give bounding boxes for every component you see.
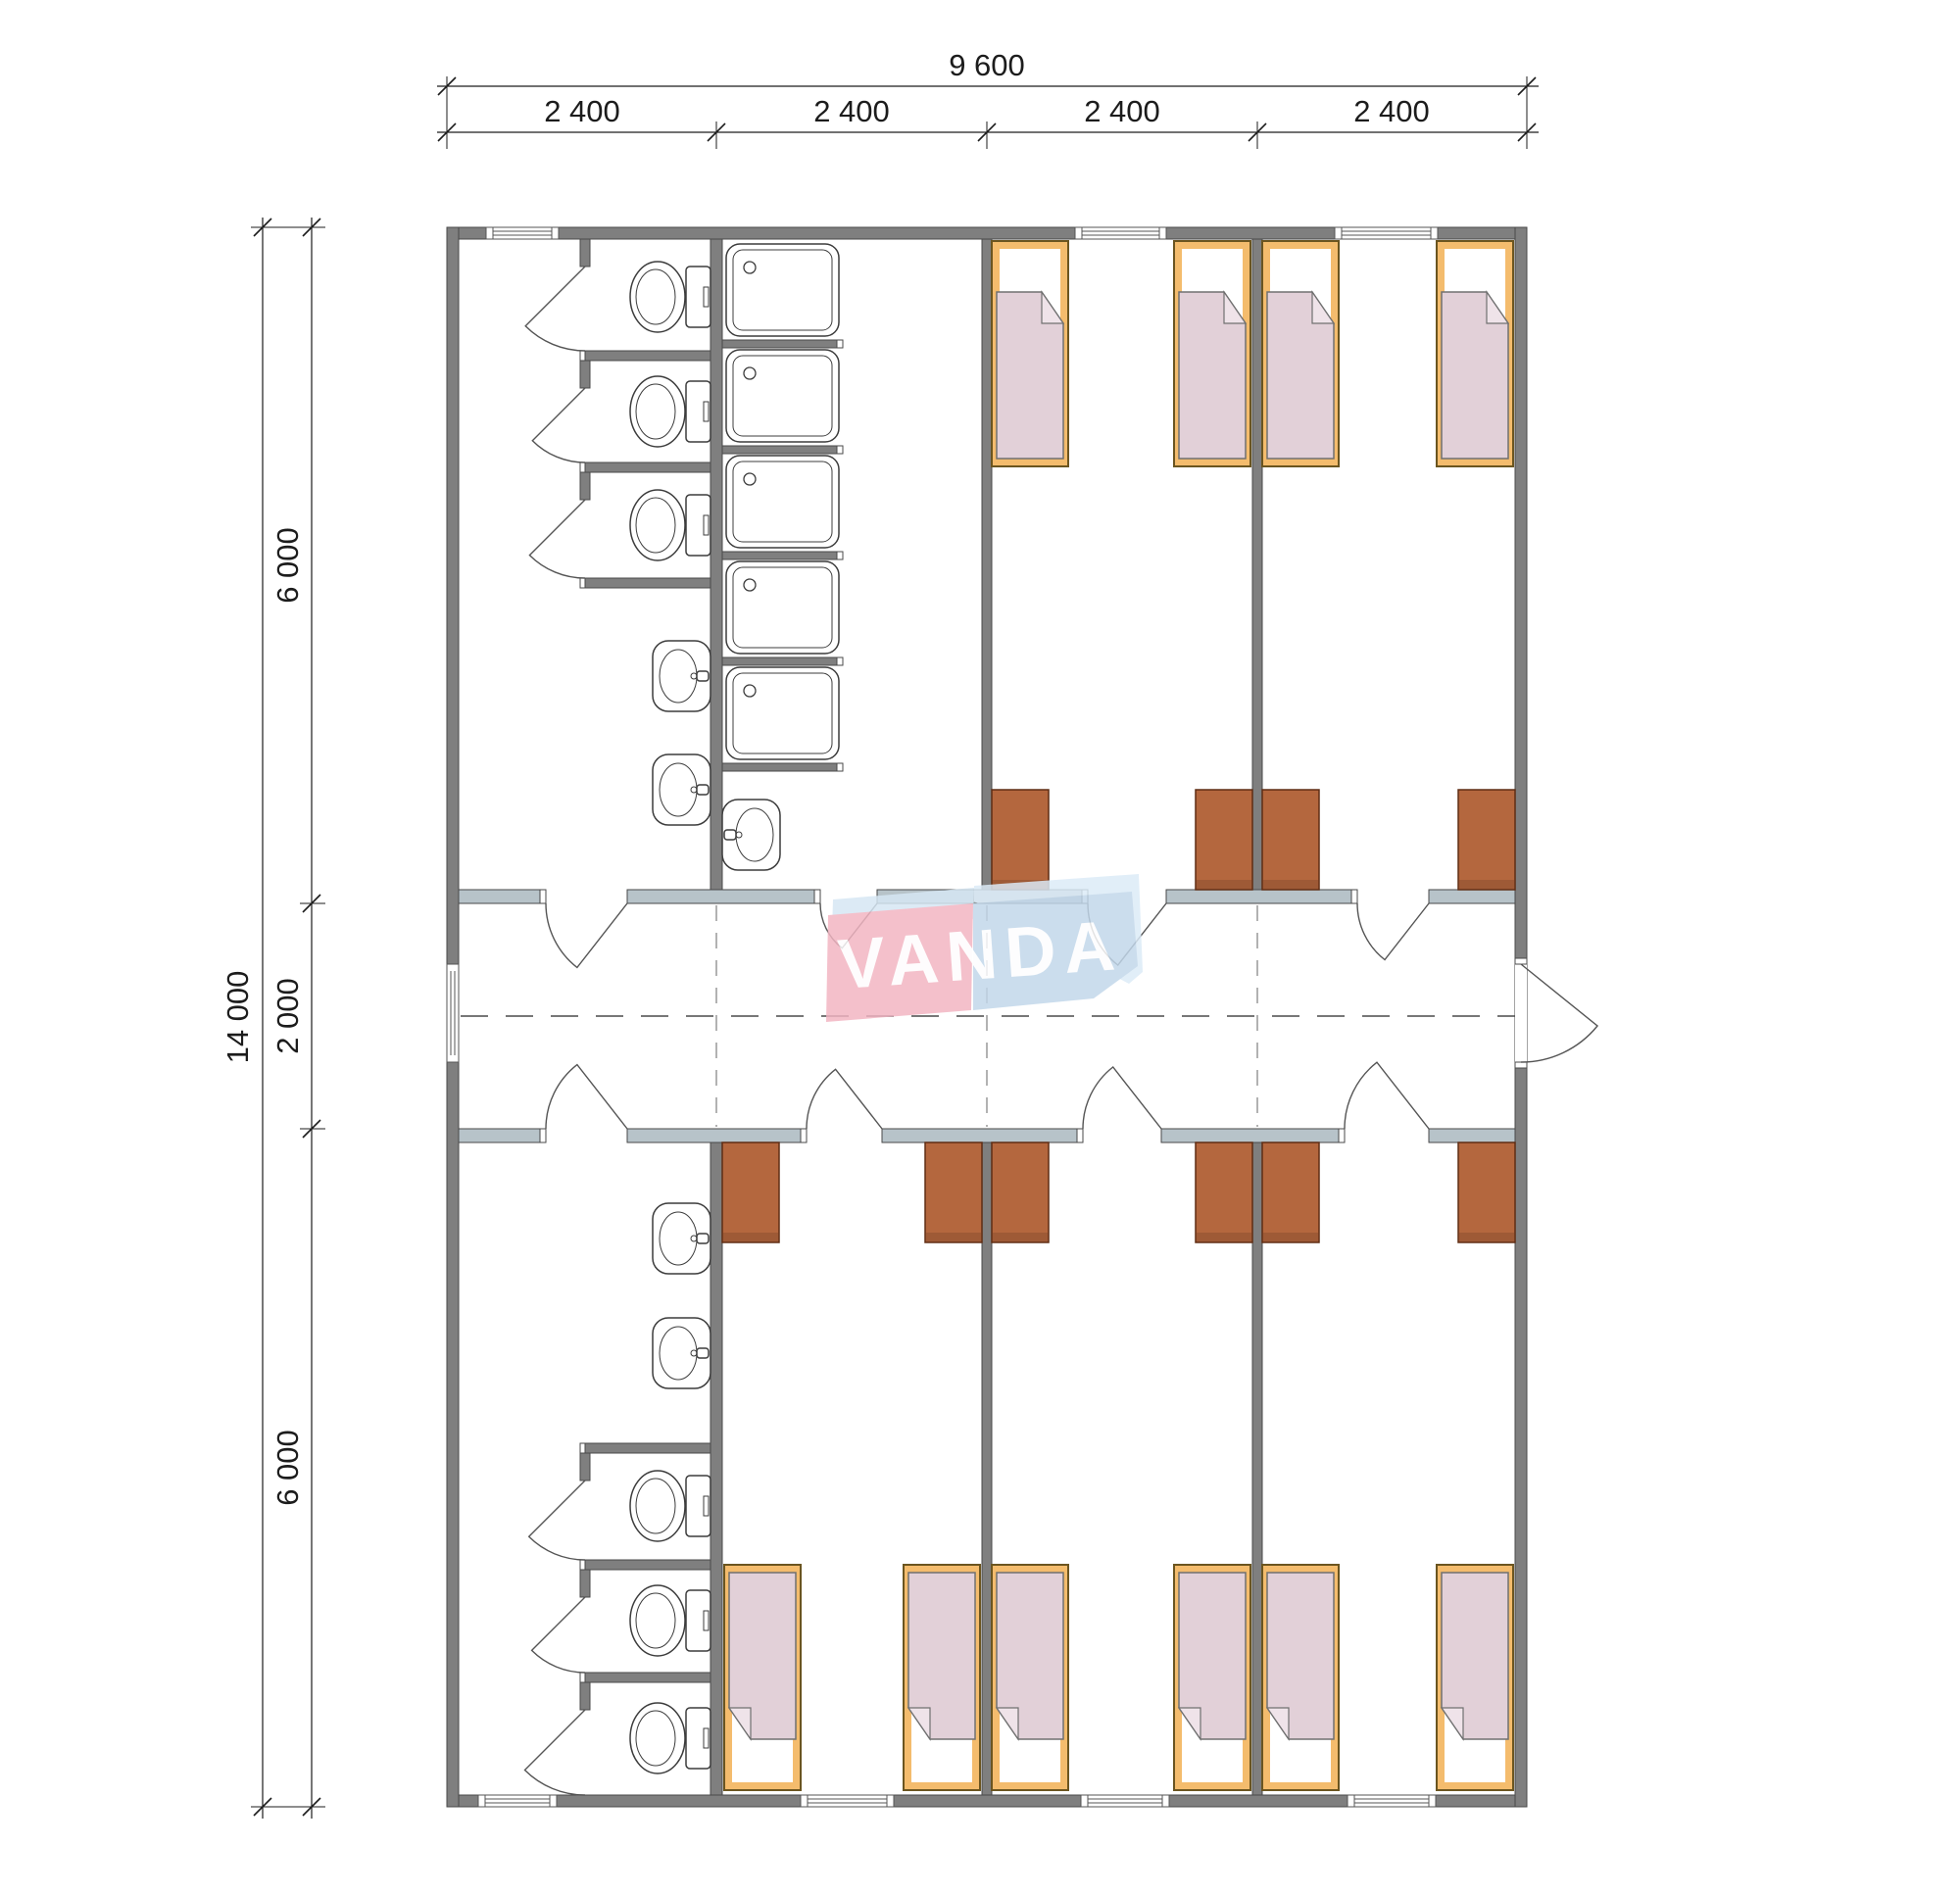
dim-total-width: 9 600 bbox=[949, 48, 1025, 82]
bed bbox=[992, 1565, 1068, 1790]
shower-tray bbox=[726, 350, 839, 442]
shower-outer bbox=[726, 350, 839, 442]
window bbox=[486, 227, 559, 239]
window bbox=[478, 1795, 557, 1807]
dim-height-corridor: 2 000 bbox=[270, 978, 305, 1054]
desk bbox=[722, 1142, 779, 1242]
desk-top bbox=[1458, 790, 1515, 890]
dim-total-height: 14 000 bbox=[220, 971, 255, 1064]
sink-faucet bbox=[697, 1348, 709, 1358]
desk bbox=[1196, 790, 1252, 890]
bed bbox=[1174, 1565, 1250, 1790]
window-post bbox=[478, 1795, 485, 1807]
desk-shade bbox=[1197, 1233, 1251, 1241]
toilet bbox=[630, 490, 710, 560]
door-jamb-cap bbox=[1339, 1129, 1345, 1142]
stall-door-stub bbox=[580, 361, 590, 388]
window-post bbox=[1347, 1795, 1354, 1807]
bed bbox=[1262, 1565, 1339, 1790]
room-door-swing bbox=[546, 903, 627, 967]
corridor-wall bbox=[459, 890, 546, 903]
corridor-wall bbox=[627, 890, 820, 903]
shower-partition bbox=[722, 340, 843, 348]
toilet-flush-button bbox=[704, 402, 709, 421]
door-jamb-cap bbox=[1515, 1062, 1527, 1068]
dim-segment-1: 2 400 bbox=[544, 94, 620, 128]
stall-door-swing bbox=[529, 1481, 585, 1560]
toilet-bowl bbox=[630, 1703, 685, 1773]
corridor-wall bbox=[1429, 890, 1515, 903]
sink-faucet bbox=[697, 671, 709, 681]
stall-partition-cap bbox=[580, 462, 585, 472]
desk-top bbox=[1262, 790, 1319, 890]
window-post bbox=[887, 1795, 894, 1807]
shower-tray bbox=[726, 244, 839, 336]
sink bbox=[653, 754, 710, 825]
window-frame bbox=[486, 227, 559, 239]
shower-partition bbox=[722, 657, 843, 665]
east-door-swing bbox=[1521, 964, 1597, 1062]
stall-partition-cap bbox=[580, 351, 585, 361]
desk bbox=[1458, 790, 1515, 890]
shower-partition-cap bbox=[837, 340, 843, 348]
wall bbox=[710, 239, 722, 890]
desk-shade bbox=[723, 1233, 778, 1241]
window-post bbox=[1162, 1795, 1169, 1807]
window-frame bbox=[1075, 227, 1166, 239]
shower-outer bbox=[726, 667, 839, 759]
door-jamb-cap bbox=[1515, 958, 1527, 964]
stall-partition bbox=[580, 1443, 710, 1453]
desk-shade bbox=[1459, 880, 1514, 889]
shower-partition-cap bbox=[837, 657, 843, 665]
corridor-wall bbox=[1161, 1129, 1345, 1142]
stall-door-swing bbox=[532, 388, 585, 462]
corridor-wall bbox=[627, 1129, 807, 1142]
window bbox=[801, 1795, 894, 1807]
toilet-flush-button bbox=[704, 1611, 709, 1630]
sink bbox=[653, 641, 710, 711]
toilet bbox=[630, 376, 710, 447]
toilet-flush-button bbox=[704, 1496, 709, 1516]
window-frame bbox=[1081, 1795, 1169, 1807]
window-post bbox=[801, 1795, 808, 1807]
toilet-flush-button bbox=[704, 515, 709, 535]
stall-partition-cap bbox=[580, 1443, 585, 1453]
desk bbox=[992, 790, 1049, 890]
stall-door-stub bbox=[580, 1453, 590, 1481]
room-door-swing bbox=[1083, 1067, 1161, 1129]
desk bbox=[1196, 1142, 1252, 1242]
shower-partition-cap bbox=[837, 552, 843, 559]
window bbox=[1335, 227, 1438, 239]
desk-shade bbox=[993, 1233, 1048, 1241]
dim-segment-3: 2 400 bbox=[1084, 94, 1160, 128]
corridor-wall bbox=[459, 1129, 546, 1142]
corridor-wall bbox=[882, 1129, 1083, 1142]
desk-top bbox=[722, 1142, 779, 1242]
toilet-bowl bbox=[630, 376, 685, 447]
window bbox=[1081, 1795, 1169, 1807]
stall-door-stub bbox=[580, 239, 590, 267]
desk-shade bbox=[1459, 1233, 1514, 1241]
sink-faucet bbox=[697, 785, 709, 795]
window-frame bbox=[447, 964, 459, 1062]
stall-partition bbox=[580, 578, 710, 588]
toilet-bowl bbox=[630, 1585, 685, 1656]
toilet bbox=[630, 1585, 710, 1656]
bed bbox=[1437, 241, 1513, 466]
bed bbox=[1437, 1565, 1513, 1790]
shower-partition-cap bbox=[837, 763, 843, 771]
vanda-watermark-logo: VANDA bbox=[826, 874, 1143, 1022]
bed bbox=[1262, 241, 1339, 466]
door-jamb-cap bbox=[1351, 890, 1357, 903]
sink-faucet bbox=[697, 1234, 709, 1243]
shower-tray bbox=[726, 667, 839, 759]
desk-shade bbox=[926, 1233, 981, 1241]
stall-door-stub bbox=[580, 1682, 590, 1710]
shower-tray bbox=[726, 456, 839, 548]
window-post bbox=[1081, 1795, 1088, 1807]
dim-segment-4: 2 400 bbox=[1353, 94, 1430, 128]
bed bbox=[992, 241, 1068, 466]
window-post bbox=[550, 1795, 557, 1807]
stall-door-swing bbox=[529, 500, 585, 578]
stall-door-swing bbox=[525, 267, 585, 351]
sink bbox=[722, 800, 780, 870]
window-frame bbox=[801, 1795, 894, 1807]
toilet-flush-button bbox=[704, 287, 709, 307]
room-door-swing bbox=[807, 1069, 882, 1129]
stall-partition bbox=[580, 351, 710, 361]
shower-outer bbox=[726, 561, 839, 654]
stall-door-swing bbox=[532, 1597, 585, 1673]
toilet bbox=[630, 1703, 710, 1773]
stall-door-swing bbox=[525, 1710, 586, 1795]
window bbox=[1075, 227, 1166, 239]
toilet bbox=[630, 262, 710, 332]
desk-top bbox=[1262, 1142, 1319, 1242]
desk-top bbox=[1196, 790, 1252, 890]
shower-partition-cap bbox=[837, 446, 843, 454]
floor-plan-page: 9 600 2 400 2 400 2 400 2 400 14 000 6 0… bbox=[0, 0, 1960, 1894]
bed bbox=[1174, 241, 1250, 466]
desk-top bbox=[992, 1142, 1049, 1242]
wall bbox=[1252, 239, 1262, 890]
shower-outer bbox=[726, 456, 839, 548]
stall-door-stub bbox=[580, 1570, 590, 1597]
shower-partition bbox=[722, 446, 843, 454]
desk-top bbox=[1196, 1142, 1252, 1242]
door-jamb-cap bbox=[1077, 1129, 1083, 1142]
toilet-bowl bbox=[630, 1471, 685, 1541]
sink bbox=[653, 1203, 710, 1274]
wall bbox=[982, 1142, 992, 1795]
dim-height-top: 6 000 bbox=[270, 527, 305, 604]
sink bbox=[653, 1318, 710, 1388]
stall-partition-cap bbox=[580, 1560, 585, 1570]
window-post bbox=[486, 227, 493, 239]
door-jamb-cap bbox=[540, 890, 546, 903]
shower-partition bbox=[722, 763, 843, 771]
shower-tray bbox=[726, 561, 839, 654]
stall-partition bbox=[580, 462, 710, 472]
toilet bbox=[630, 1471, 710, 1541]
desk-shade bbox=[1263, 1233, 1318, 1241]
desk-shade bbox=[1197, 880, 1251, 889]
toilet-bowl bbox=[630, 490, 685, 560]
desk-shade bbox=[1263, 880, 1318, 889]
wall bbox=[1252, 1142, 1262, 1795]
dim-height-bottom: 6 000 bbox=[270, 1430, 305, 1506]
east-door-opening bbox=[1515, 964, 1527, 1062]
room-door-swing bbox=[546, 1065, 627, 1129]
window-post bbox=[1335, 227, 1342, 239]
corridor-wall bbox=[1429, 1129, 1515, 1142]
window-frame bbox=[1335, 227, 1438, 239]
window-frame bbox=[478, 1795, 557, 1807]
floor-plan-drawing: 9 600 2 400 2 400 2 400 2 400 14 000 6 0… bbox=[0, 0, 1960, 1894]
stall-partition-cap bbox=[580, 578, 585, 588]
desk-top bbox=[925, 1142, 982, 1242]
desk bbox=[1458, 1142, 1515, 1242]
corridor-wall bbox=[1166, 890, 1357, 903]
stall-door-stub bbox=[580, 472, 590, 500]
window-west bbox=[447, 964, 459, 1062]
window-post bbox=[1159, 227, 1166, 239]
stall-partition-cap bbox=[580, 1673, 585, 1682]
window-post bbox=[1075, 227, 1082, 239]
door-jamb-cap bbox=[540, 1129, 546, 1142]
wall bbox=[982, 239, 992, 890]
desk bbox=[1262, 1142, 1319, 1242]
window-post bbox=[1429, 1795, 1436, 1807]
shower-outer bbox=[726, 244, 839, 336]
desk-top bbox=[992, 790, 1049, 890]
desk bbox=[1262, 790, 1319, 890]
dim-segment-2: 2 400 bbox=[813, 94, 890, 128]
stall-partition bbox=[580, 1560, 710, 1570]
window-post bbox=[552, 227, 559, 239]
window bbox=[1347, 1795, 1436, 1807]
toilet-flush-button bbox=[704, 1728, 709, 1748]
window-post bbox=[1431, 227, 1438, 239]
desk bbox=[992, 1142, 1049, 1242]
shower-partition bbox=[722, 552, 843, 559]
sink-faucet bbox=[724, 830, 736, 840]
desk-top bbox=[1458, 1142, 1515, 1242]
wall bbox=[710, 1142, 722, 1795]
door-jamb-cap bbox=[801, 1129, 807, 1142]
desk bbox=[925, 1142, 982, 1242]
window-frame bbox=[1347, 1795, 1436, 1807]
room-door-swing bbox=[1357, 903, 1429, 960]
bed bbox=[904, 1565, 980, 1790]
bed bbox=[724, 1565, 801, 1790]
toilet-bowl bbox=[630, 262, 685, 332]
stall-partition bbox=[580, 1673, 710, 1682]
room-door-swing bbox=[1345, 1062, 1429, 1129]
door-jamb-cap bbox=[814, 890, 820, 903]
